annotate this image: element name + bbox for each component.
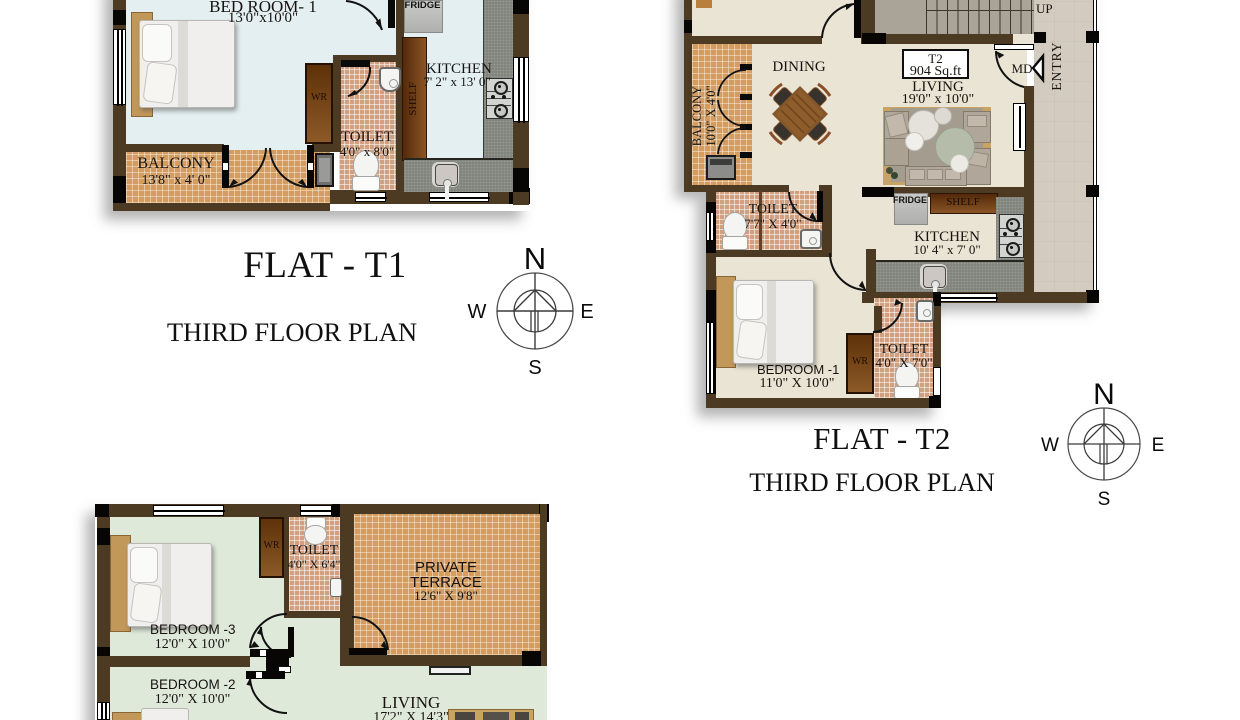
- svg-text:N: N: [1093, 378, 1115, 411]
- svg-text:W: W: [1041, 435, 1059, 456]
- svg-text:N: N: [524, 241, 546, 276]
- svg-text:E: E: [1152, 435, 1165, 456]
- svg-text:S: S: [528, 357, 541, 379]
- svg-text:S: S: [1098, 489, 1111, 510]
- svg-text:E: E: [580, 301, 593, 323]
- svg-text:W: W: [468, 301, 487, 323]
